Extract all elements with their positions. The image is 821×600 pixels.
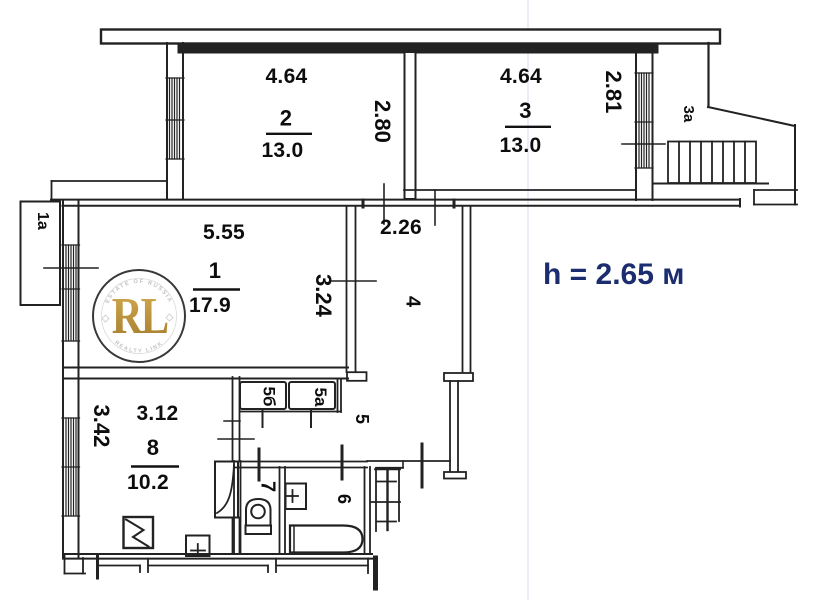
svg-text:3.42: 3.42 (89, 405, 114, 448)
svg-text:8: 8 (147, 435, 160, 460)
svg-text:2: 2 (280, 106, 293, 131)
svg-text:13.0: 13.0 (261, 139, 303, 162)
svg-text:3а: 3а (680, 106, 697, 123)
svg-text:h = 2.65 м: h = 2.65 м (543, 258, 684, 291)
svg-text:4.64: 4.64 (500, 65, 542, 88)
svg-text:3: 3 (519, 98, 532, 123)
svg-text:4: 4 (402, 296, 424, 308)
svg-text:13.0: 13.0 (499, 134, 541, 157)
svg-text:5б: 5б (260, 387, 279, 407)
svg-text:2.26: 2.26 (380, 216, 422, 239)
svg-text:5: 5 (352, 414, 372, 424)
svg-text:7: 7 (257, 481, 279, 492)
svg-text:5.55: 5.55 (203, 221, 245, 244)
svg-text:3.12: 3.12 (136, 402, 178, 425)
svg-text:6: 6 (334, 494, 354, 504)
svg-text:2.81: 2.81 (601, 71, 626, 114)
svg-text:1а: 1а (34, 212, 51, 230)
svg-text:1: 1 (209, 258, 222, 283)
svg-text:2.80: 2.80 (370, 100, 395, 143)
svg-text:RL: RL (112, 288, 168, 345)
svg-text:17.9: 17.9 (189, 294, 231, 317)
svg-text:3.24: 3.24 (311, 274, 336, 318)
svg-text:10.2: 10.2 (127, 471, 169, 494)
svg-text:4.64: 4.64 (265, 65, 307, 88)
svg-text:5а: 5а (311, 388, 330, 407)
